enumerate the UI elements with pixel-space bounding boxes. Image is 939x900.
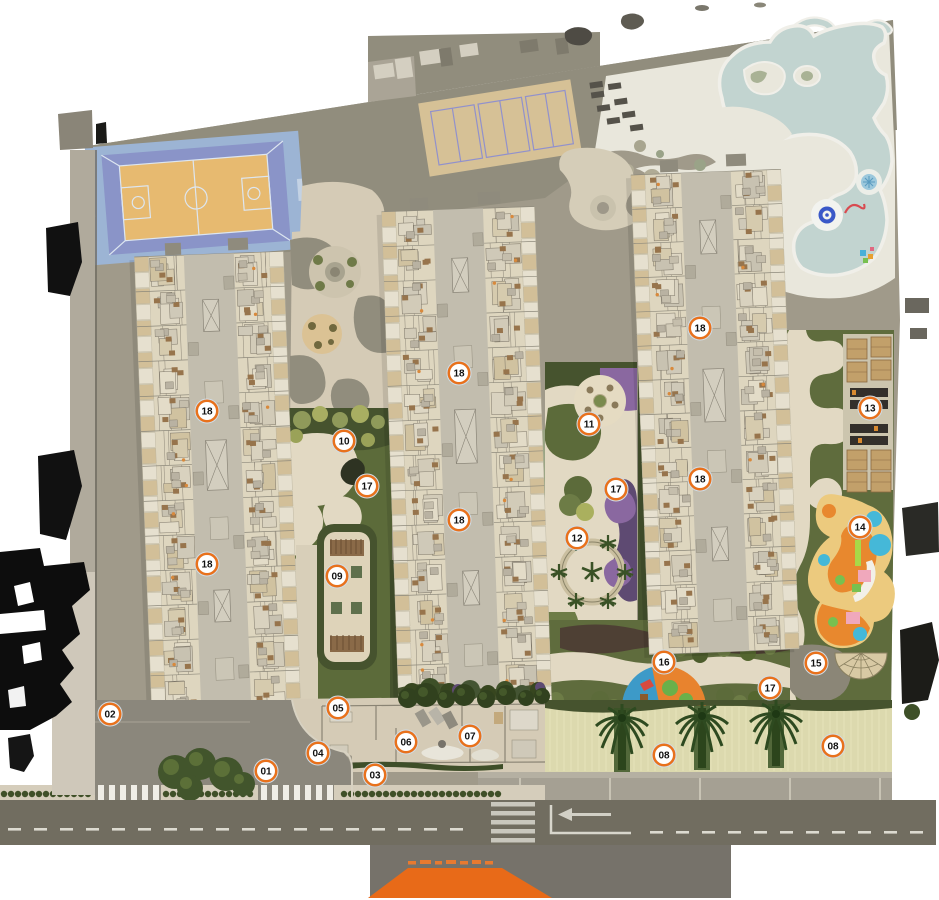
svg-text:18: 18 bbox=[453, 369, 465, 380]
svg-text:10: 10 bbox=[338, 437, 350, 448]
svg-text:18: 18 bbox=[694, 324, 706, 335]
svg-text:12: 12 bbox=[571, 534, 583, 545]
svg-text:15: 15 bbox=[810, 659, 822, 670]
svg-text:18: 18 bbox=[453, 516, 465, 527]
svg-text:06: 06 bbox=[400, 738, 412, 749]
svg-text:01: 01 bbox=[260, 767, 272, 778]
svg-text:17: 17 bbox=[361, 482, 373, 493]
svg-text:09: 09 bbox=[331, 572, 343, 583]
svg-text:17: 17 bbox=[764, 684, 776, 695]
svg-text:18: 18 bbox=[201, 407, 213, 418]
svg-text:05: 05 bbox=[332, 704, 344, 715]
svg-text:18: 18 bbox=[694, 475, 706, 486]
svg-text:14: 14 bbox=[854, 523, 866, 534]
svg-text:08: 08 bbox=[827, 742, 839, 753]
svg-text:02: 02 bbox=[104, 710, 116, 721]
svg-text:17: 17 bbox=[610, 485, 622, 496]
svg-text:07: 07 bbox=[464, 732, 476, 743]
svg-text:11: 11 bbox=[584, 420, 595, 431]
svg-text:18: 18 bbox=[201, 560, 213, 571]
svg-text:13: 13 bbox=[864, 404, 876, 415]
svg-text:16: 16 bbox=[658, 658, 670, 669]
svg-text:04: 04 bbox=[312, 749, 324, 760]
svg-text:03: 03 bbox=[369, 771, 381, 782]
svg-text:08: 08 bbox=[658, 751, 670, 762]
